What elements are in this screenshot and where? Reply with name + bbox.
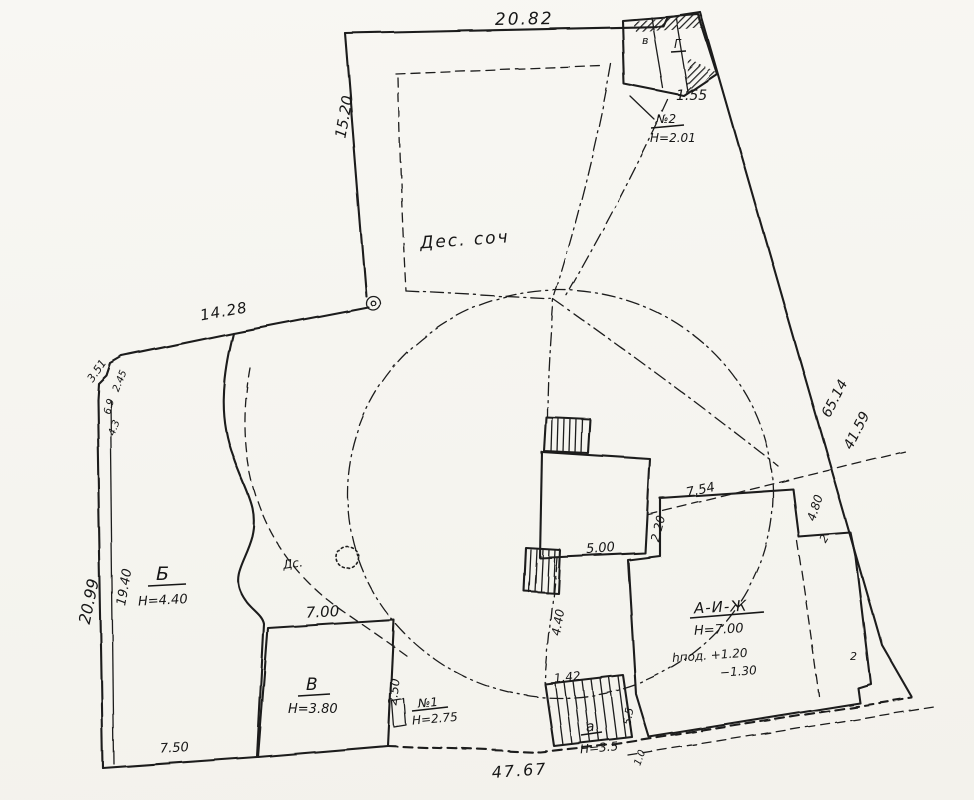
dim-top: 20.82	[495, 9, 554, 30]
building-b-underline	[148, 584, 186, 586]
stair-height: H=3.5	[579, 739, 618, 756]
ds-dotted-circle	[336, 546, 358, 568]
building-a-floor-2: −1.30	[720, 663, 758, 680]
dim-corner-b: 2.45	[111, 369, 130, 394]
building-a-inner-dashed	[797, 541, 819, 696]
dim-right-lower: 41.59	[841, 409, 873, 452]
structure-n2-height: H=2.01	[650, 131, 696, 145]
dim-corner-a: 3.51	[85, 357, 110, 385]
dim-bottom: 47.67	[491, 759, 548, 782]
ds-label: Дс.	[281, 555, 304, 572]
building-v-side-dim: 2.50	[386, 677, 403, 706]
dim-upper-slant: 14.28	[199, 298, 249, 324]
structure-n2-mark-v: в	[642, 34, 648, 47]
garden-path-left-vertical	[398, 78, 406, 291]
dim-edge-2: 2	[850, 650, 857, 663]
dim-left-inner: 19.40	[114, 568, 135, 607]
stair-width-dim: 1.42	[553, 669, 581, 686]
structure-n2-front-dim: 1.55	[676, 88, 707, 104]
building-b-label: Б	[156, 563, 169, 585]
garden-path-diagonal	[553, 299, 778, 466]
dim-corner-c: 6.9	[102, 398, 117, 416]
garden-path-center-upper	[547, 64, 611, 417]
dim-inner-754: 7.54	[685, 480, 716, 501]
boundary-strip-left-edge	[345, 33, 366, 296]
annex-n1-height: H=2.75	[411, 710, 458, 728]
dim-inner-500: 5.00	[586, 540, 616, 557]
boundary-right-edge	[700, 12, 912, 697]
dim-right-upper: 65.14	[819, 377, 851, 420]
scanned-site-plan: 20.82 15.20 14.28 3.51 2.45 6.9 4.3 20.9…	[0, 0, 974, 800]
n2-leader-line	[631, 97, 655, 120]
stair-bottom-dim: 1.0	[632, 749, 648, 768]
boundary-bottom-dashed	[388, 698, 912, 752]
building-v-height: H=3.80	[288, 702, 338, 717]
building-b-height: H=4.40	[138, 592, 188, 610]
stair-side-dim: 5.5	[621, 707, 637, 726]
structure-n2-mark-g-underline	[671, 51, 686, 52]
building-a-floor-1: hпод. +1.20	[672, 646, 749, 665]
boundary-left-inner-line	[110, 400, 114, 764]
dim-inner-480: 4.80	[804, 493, 826, 523]
dim-corner-d: 4.3	[107, 419, 123, 438]
building-a-height: H=7.00	[694, 621, 744, 639]
building-v-top-dim: 7.00	[305, 602, 339, 622]
boundary-bottom-dashed-2	[628, 707, 934, 755]
site-label: Дес. соч	[418, 227, 510, 253]
building-v-label: В	[306, 675, 318, 695]
garden-path-top	[396, 66, 601, 74]
boundary-bottom-left	[103, 757, 257, 768]
setback-line-754	[648, 451, 905, 514]
structure-n2-label: №2	[655, 112, 676, 126]
site-plan-drawing: 20.82 15.20 14.28 3.51 2.45 6.9 4.3 20.9…	[0, 0, 974, 800]
stair-top-steps	[551, 418, 582, 453]
building-v-outline	[258, 620, 394, 757]
building-b-outline	[223, 333, 264, 757]
building-v-underline	[298, 694, 330, 696]
dim-left-outer: 20.99	[75, 577, 103, 626]
survey-hook-center	[371, 301, 376, 306]
dim-bottom-left: 7.50	[160, 740, 190, 756]
dim-inner-220: 2.20	[648, 514, 668, 544]
